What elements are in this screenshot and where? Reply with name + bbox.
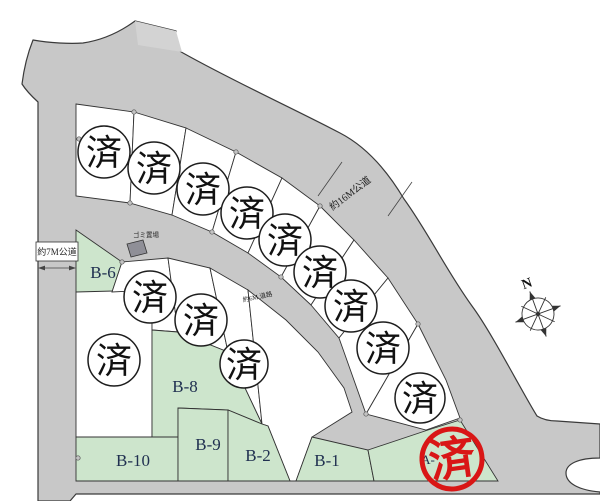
- sold-marker-text: 済: [96, 341, 132, 381]
- sold-marker: 済: [78, 126, 130, 178]
- sold-marker-text: 済: [365, 329, 401, 369]
- sold-marker: 済: [325, 280, 377, 332]
- sold-marker-text: 済: [185, 170, 221, 210]
- sold-marker-text: 済: [226, 345, 262, 385]
- sold-marker-text: 済: [333, 287, 369, 327]
- sold-marker: 済: [357, 322, 409, 374]
- sold-marker: 済: [88, 334, 140, 386]
- road-7m-label: 約7M公道: [37, 246, 77, 257]
- compass-icon: N: [502, 269, 569, 345]
- plot-b2-label: B-2: [245, 446, 271, 465]
- sold-marker: 済: [220, 340, 268, 388]
- sold-marker-text: 済: [402, 379, 438, 419]
- sold-marker-text: 済: [86, 133, 122, 173]
- sold-marker: 済: [395, 373, 445, 423]
- plot-b6-label: B-6: [90, 263, 116, 282]
- plot-b10-label: B-10: [116, 451, 150, 470]
- sold-marker-text: 済: [183, 301, 219, 341]
- sold-marker-text: 済: [132, 278, 168, 318]
- plot-b9-label: B-9: [195, 435, 221, 454]
- sold-marker: 済: [124, 271, 176, 323]
- garbage-point-label: ゴミ置場: [133, 230, 160, 239]
- sold-marker: 済: [128, 142, 180, 194]
- compass-north-label: N: [520, 276, 535, 294]
- plot-b1-label: B-1: [314, 451, 340, 470]
- subdivision-map: ゴミ置場 済 済 済 済 済 済 済 済 済 済 済: [0, 0, 600, 501]
- map-canvas: ゴミ置場 済 済 済 済 済 済 済 済 済 済 済: [0, 0, 600, 501]
- sold-marker-text: 済: [136, 149, 172, 189]
- sold-marker: 済: [175, 294, 227, 346]
- sold-marker-text: 済: [267, 221, 303, 261]
- sold-stamp-text: 済: [426, 431, 480, 488]
- sold-marker-text: 済: [229, 194, 265, 234]
- plot-b8-label: B-8: [172, 377, 198, 396]
